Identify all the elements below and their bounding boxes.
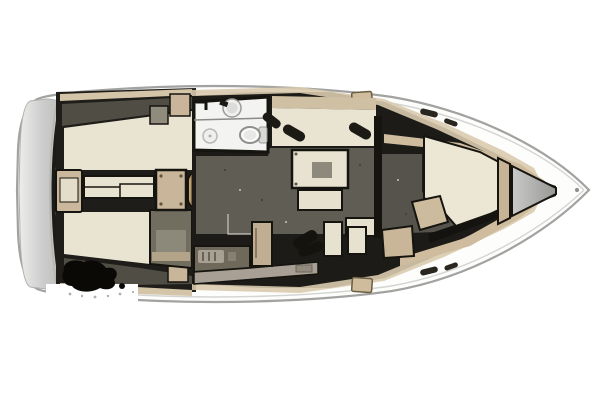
winch-base-port <box>150 106 168 124</box>
salon-table-inset <box>312 162 332 178</box>
vanity-desk <box>382 226 414 258</box>
helm-pedestal-top <box>60 178 78 202</box>
helm-pedestal <box>56 170 82 212</box>
deck-locker-starboard <box>168 266 188 282</box>
pedestal-screw <box>159 202 162 205</box>
bulkhead <box>374 116 382 238</box>
smudge-dot <box>119 283 125 289</box>
galley-sink <box>296 265 312 272</box>
sink-drain <box>227 103 238 114</box>
table-leg <box>295 153 298 156</box>
settee-shelf <box>272 96 376 110</box>
quarter-berth-cushion <box>156 230 186 252</box>
toilet <box>240 127 267 143</box>
floor-speck <box>397 179 399 181</box>
floorplan-drawing <box>0 0 600 400</box>
fridge <box>252 222 272 266</box>
nav-bench <box>348 227 366 254</box>
shower-drain <box>203 129 217 143</box>
stove-knob-panel <box>228 252 236 261</box>
locker-bulkhead <box>498 158 510 224</box>
yacht-floorplan-canvas <box>0 0 600 400</box>
nav-bench <box>324 222 342 256</box>
table-leg <box>295 183 298 186</box>
stove-top <box>198 250 224 263</box>
head-bathroom <box>194 97 268 152</box>
pedestal-screw <box>159 174 162 177</box>
floor-speck <box>405 213 407 215</box>
swim-platform <box>19 99 61 289</box>
cockpit-table <box>84 176 154 198</box>
salon-settee <box>261 96 376 146</box>
quarter-berth-shelf <box>152 252 190 261</box>
table-pedestal <box>156 170 186 210</box>
pedestal-screw <box>179 202 182 205</box>
toilet-seat <box>244 130 257 140</box>
pedestal-screw <box>179 174 182 177</box>
deck-hatch-starboard <box>352 277 373 292</box>
deck-locker-port <box>170 94 190 116</box>
bow-fitting <box>575 188 579 192</box>
quarter-berth <box>150 210 192 268</box>
salon-bench <box>298 190 342 210</box>
